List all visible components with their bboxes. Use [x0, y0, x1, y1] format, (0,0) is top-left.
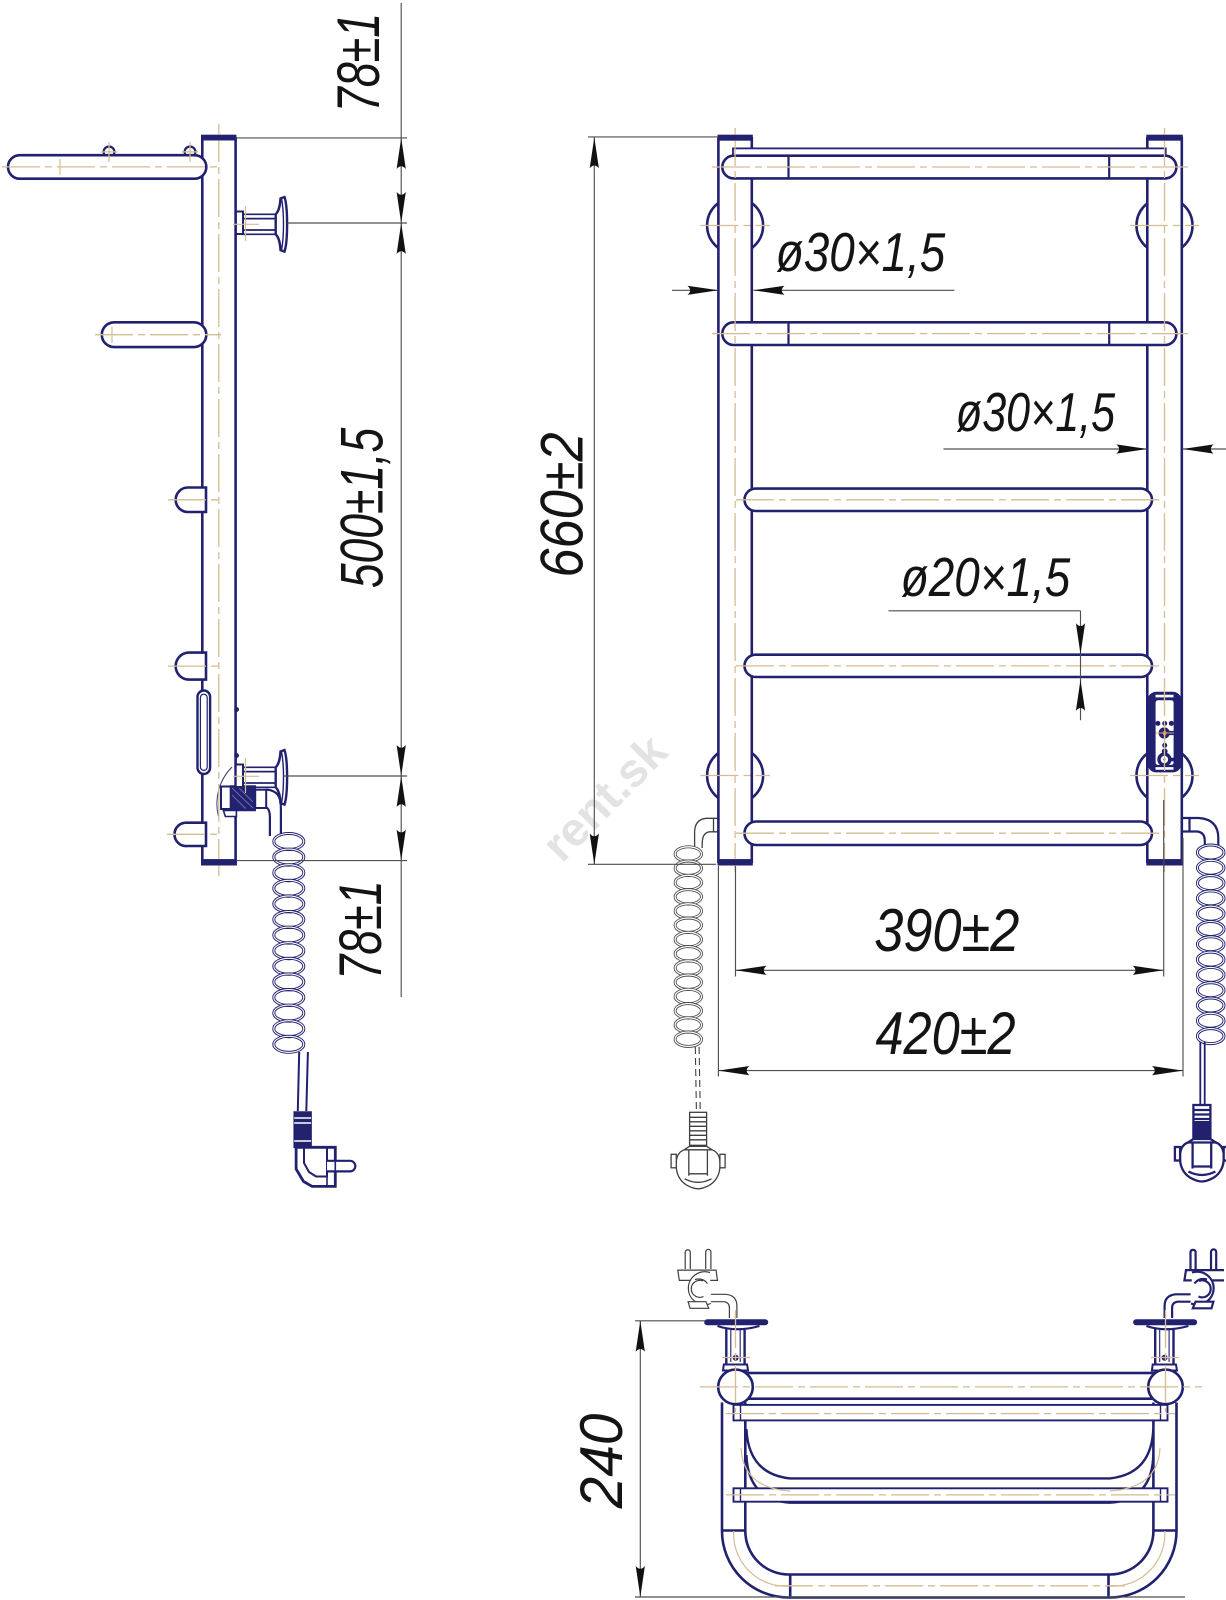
svg-text:78±1: 78±1: [326, 13, 393, 112]
svg-text:ø20×1,5: ø20×1,5: [901, 546, 1071, 608]
svg-text:660±2: 660±2: [528, 432, 595, 577]
svg-text:420±2: 420±2: [875, 1000, 1015, 1067]
svg-text:390±2: 390±2: [874, 897, 1019, 964]
svg-text:ø30×1,5: ø30×1,5: [956, 382, 1116, 443]
svg-text:500±1,5: 500±1,5: [329, 427, 396, 588]
svg-text:240: 240: [569, 1414, 636, 1510]
svg-text:ø30×1,5: ø30×1,5: [776, 221, 946, 283]
svg-text:rent.sk: rent.sk: [531, 723, 677, 871]
svg-text:78±1: 78±1: [328, 880, 395, 979]
